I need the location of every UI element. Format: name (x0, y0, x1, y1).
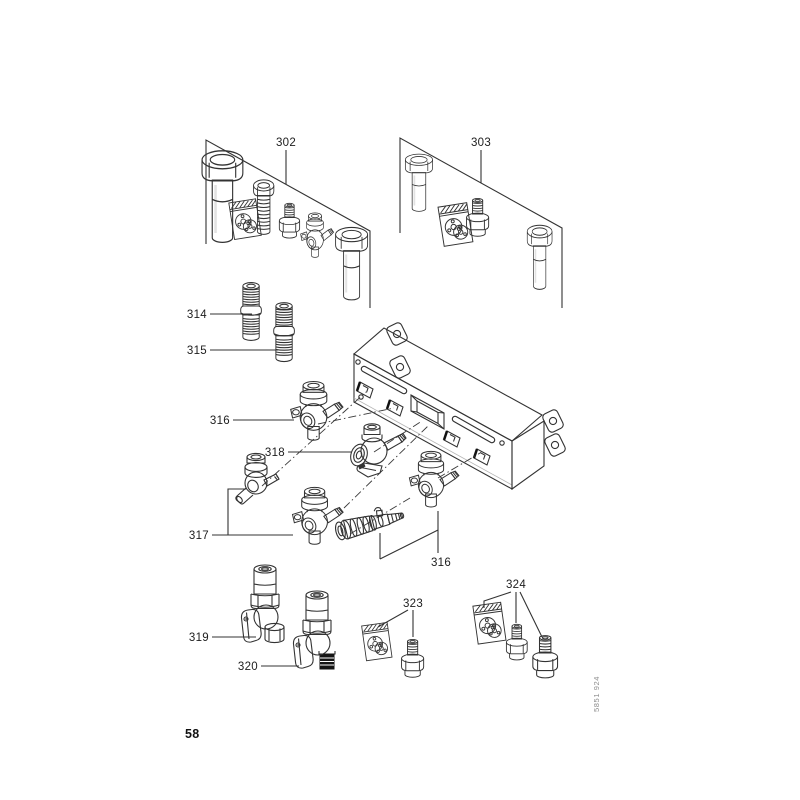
compression-fitting (402, 639, 424, 677)
bracket-side-face (512, 421, 544, 489)
valve-316-upper (291, 381, 343, 440)
valve-317-straight (293, 487, 344, 544)
callout-label: 324 (506, 579, 526, 591)
mounting-bracket (354, 322, 567, 489)
parts-diagram: 302 303 314 315 316 318 317 316 (0, 0, 800, 800)
group-324 (473, 602, 558, 678)
manual-page: 302 303 314 315 316 318 317 316 (0, 0, 800, 800)
bracket-clip (387, 400, 403, 416)
assembly-centerlines (262, 392, 480, 534)
callout-label: 314 (187, 309, 207, 321)
bracket-clip (444, 431, 460, 447)
callout-302: 302 (276, 137, 296, 184)
bracket-clip (474, 449, 490, 465)
callout-label: 319 (189, 632, 209, 644)
callout-317: 317 (189, 489, 293, 542)
callout-label: 323 (403, 598, 423, 610)
union-fitting (527, 225, 552, 289)
union-fitting (336, 227, 368, 299)
callout-315: 315 (187, 345, 278, 357)
callout-324: 324 (484, 579, 542, 637)
callout-320: 320 (238, 661, 299, 673)
nipple-314 (241, 283, 262, 341)
gasket-pack (229, 199, 261, 240)
valve-316-lower (409, 451, 459, 507)
threaded-fitting (467, 198, 489, 236)
union-fitting (405, 154, 432, 211)
union-fitting (202, 151, 243, 243)
callout-label: 318 (265, 447, 285, 459)
callout-label: 320 (238, 661, 258, 673)
compression-fitting (506, 624, 527, 660)
callout-label: 316 (210, 415, 230, 427)
nipple-315 (274, 303, 295, 362)
gasket-pack (362, 622, 392, 660)
gasket-pack (473, 602, 506, 644)
group-323 (362, 622, 424, 677)
callout-316-lower: 316 (380, 511, 451, 569)
callout-303: 303 (471, 137, 491, 183)
callout-316-upper: 316 (210, 415, 294, 427)
compression-fitting (533, 636, 558, 678)
hose-connection (333, 502, 406, 541)
page-number: 58 (185, 727, 200, 741)
callout-318: 318 (265, 447, 352, 459)
bracket-flange (541, 409, 566, 458)
callout-label: 316 (431, 557, 451, 569)
callout-label: 315 (187, 345, 207, 357)
bracket-cutout (411, 395, 444, 429)
small-valve (301, 213, 334, 257)
callout-label: 302 (276, 137, 296, 149)
safety-valve-319 (241, 565, 284, 643)
gasket-pack (438, 203, 473, 247)
valve-317-angle (236, 453, 279, 504)
threaded-fitting (279, 203, 299, 238)
safety-valve-320 (293, 591, 335, 669)
document-code: 5851 924 (592, 676, 601, 712)
callout-label: 303 (471, 137, 491, 149)
callout-319: 319 (189, 632, 256, 644)
bracket-top-face (354, 328, 542, 441)
callout-label: 317 (189, 530, 209, 542)
